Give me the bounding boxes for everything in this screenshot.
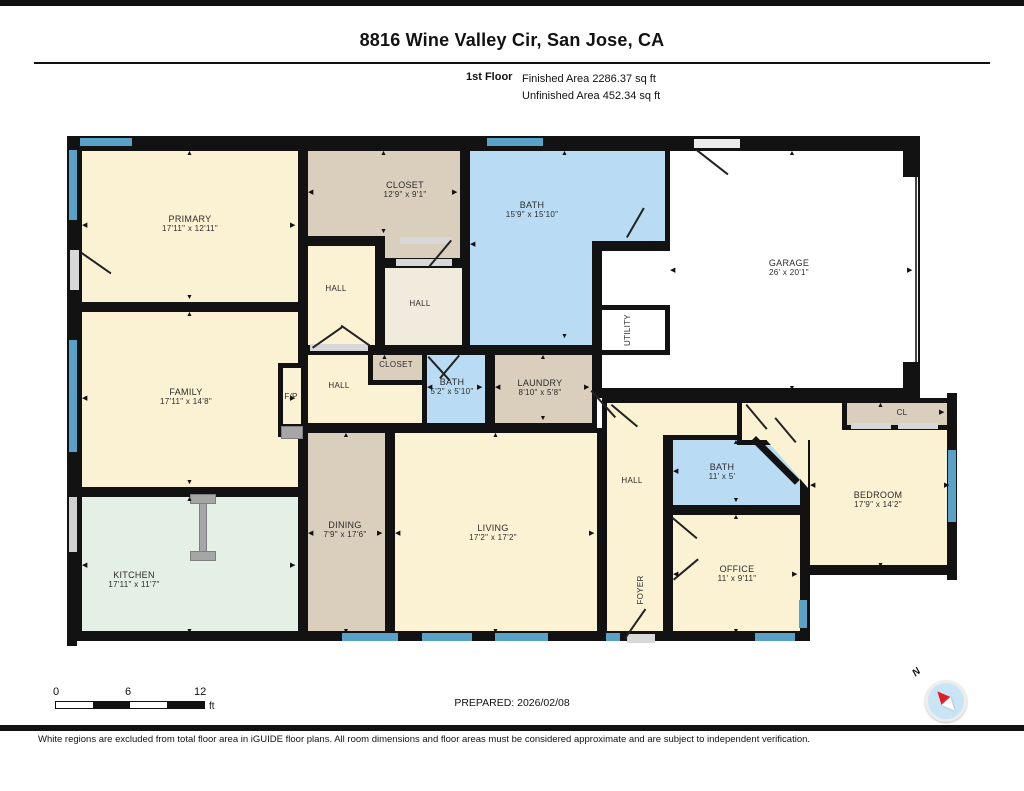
dim-arrow-b-primary: ▼ [186, 294, 193, 302]
room-label-cl: CL [897, 408, 908, 418]
room-dims-bath-top: 15'9" x 15'10" [506, 210, 559, 220]
plan-overlay-15 [190, 551, 216, 561]
room-label-hall-c: HALL [328, 381, 349, 391]
room-name-living: LIVING [469, 523, 517, 533]
room-name-primary: PRIMARY [162, 214, 218, 224]
room-label-living: LIVING17'2" x 17'2" [469, 523, 517, 543]
room-name-hall-center: HALL [621, 476, 642, 486]
dim-arrow-b-living: ▼ [492, 628, 499, 636]
compass-icon [925, 680, 967, 722]
plan-overlay-20 [898, 423, 938, 429]
dim-arrow-t-kitchen: ▲ [186, 496, 193, 504]
dim-arrow-b-dining: ▼ [343, 628, 350, 636]
dim-arrow-t-laundry: ▲ [540, 354, 547, 362]
dim-arrow-t-closet-top: ▲ [380, 150, 387, 158]
floorplan-page: 8816 Wine Valley Cir, San Jose, CA 1st F… [0, 0, 1024, 791]
room-hall-center [607, 403, 663, 636]
room-dims-bedroom: 17'9" x 14'2" [854, 500, 903, 510]
dim-arrow-t-bath-right: ▲ [733, 439, 740, 447]
room-label-bedroom: BEDROOM17'9" x 14'2" [854, 490, 903, 510]
room-hall-center [607, 403, 737, 435]
bottom-border-bar [0, 725, 1024, 731]
dim-arrow-b-kitchen: ▼ [186, 628, 193, 636]
room-bath-top [470, 151, 592, 345]
room-name-utility: UTILITY [623, 314, 633, 346]
dim-arrow-r-cl: ▶ [939, 409, 944, 417]
dim-arrow-l-closet-top: ◀ [308, 189, 313, 197]
room-label-kitchen: KITCHEN17'11" x 11'7" [108, 570, 159, 590]
window-3 [69, 340, 77, 452]
dim-arrow-r-garage: ▶ [907, 267, 912, 275]
room-name-bath-right: BATH [709, 462, 736, 472]
dim-arrow-l-family: ◀ [82, 395, 87, 403]
dim-arrow-t-living: ▲ [492, 432, 499, 440]
room-name-closet-small: CLOSET [379, 360, 413, 370]
room-name-fp: F/P [284, 392, 297, 402]
dim-arrow-r-bath-top: ▶ [652, 241, 657, 249]
window-0 [80, 138, 132, 146]
room-name-office: OFFICE [718, 564, 757, 574]
room-name-hall-c: HALL [328, 381, 349, 391]
window-4 [69, 497, 77, 552]
plan-overlay-26 [70, 250, 79, 290]
dim-arrow-l-living: ◀ [395, 530, 400, 538]
dim-arrow-l-primary: ◀ [82, 222, 87, 230]
dim-arrow-b-office: ▼ [733, 628, 740, 636]
room-label-fp: F/P [284, 392, 297, 402]
dim-arrow-l-bath-right: ◀ [673, 468, 678, 476]
room-label-bath-right: BATH11' x 5' [709, 462, 736, 482]
dim-arrow-l-dining: ◀ [308, 530, 313, 538]
room-name-foyer: FOYER [636, 575, 646, 604]
plan-overlay-22 [694, 139, 740, 148]
room-label-foyer: FOYER [636, 575, 646, 604]
room-label-utility: UTILITY [623, 314, 633, 346]
dim-arrow-l-office: ◀ [673, 571, 678, 579]
room-label-laundry: LAUNDRY8'10" x 5'8" [518, 378, 563, 398]
room-label-dining: DINING7'9" x 17'6" [323, 520, 366, 540]
room-label-primary: PRIMARY17'11" x 12'11" [162, 214, 218, 234]
window-6 [422, 633, 472, 641]
dim-arrow-b-laundry: ▼ [540, 415, 547, 423]
room-label-hall-b: HALL [409, 299, 430, 309]
room-label-hall-a: HALL [325, 284, 346, 294]
room-dims-primary: 17'11" x 12'11" [162, 224, 218, 234]
plan-overlay-10 [903, 362, 920, 398]
room-name-hall-a: HALL [325, 284, 346, 294]
plan-overlay-19 [851, 423, 891, 429]
room-label-closet-small: CLOSET [379, 360, 413, 370]
room-dims-bath-small: 5'2" x 5'10" [430, 387, 473, 397]
room-label-closet-top: CLOSET12'9" x 9'1" [383, 180, 426, 200]
window-8 [606, 633, 620, 641]
floorplan-canvas: PRIMARY17'11" x 12'11"▲▼◀▶FAMILY17'11" x… [0, 0, 1024, 791]
room-name-closet-top: CLOSET [383, 180, 426, 190]
room-name-laundry: LAUNDRY [518, 378, 563, 388]
plan-overlay-9 [903, 141, 920, 177]
dim-arrow-b-bath-right: ▼ [733, 497, 740, 505]
disclaimer-text: White regions are excluded from total fl… [38, 734, 998, 745]
room-dims-closet-top: 12'9" x 9'1" [383, 190, 426, 200]
room-utility [602, 310, 665, 350]
room-name-cl: CL [897, 408, 908, 418]
room-dims-kitchen: 17'11" x 11'7" [108, 580, 159, 590]
plan-overlay-25 [310, 344, 368, 351]
dim-arrow-l-bedroom: ◀ [810, 482, 815, 490]
dim-arrow-t-family: ▲ [186, 311, 193, 319]
dim-arrow-r-primary: ▶ [290, 222, 295, 230]
dim-arrow-r-laundry: ▶ [584, 384, 589, 392]
room-name-bath-small: BATH [430, 377, 473, 387]
room-label-family: FAMILY17'11" x 14'8" [160, 387, 212, 407]
room-name-garage: GARAGE [769, 258, 809, 268]
dim-arrow-t-dining: ▲ [343, 432, 350, 440]
room-dims-dining: 7'9" x 17'6" [323, 530, 366, 540]
dim-arrow-b-bedroom: ▼ [877, 562, 884, 570]
dim-arrow-t-bedroom: ▲ [877, 402, 884, 410]
plan-overlay-3 [597, 388, 920, 398]
window-9 [755, 633, 795, 641]
room-name-bedroom: BEDROOM [854, 490, 903, 500]
dim-arrow-r-closet-top: ▶ [452, 189, 457, 197]
room-dims-living: 17'2" x 17'2" [469, 533, 517, 543]
plan-overlay-16 [199, 503, 207, 552]
room-name-hall-b: HALL [409, 299, 430, 309]
plan-overlay-13 [281, 426, 303, 439]
room-label-bath-small: BATH5'2" x 5'10" [430, 377, 473, 397]
dim-arrow-t-bath-top: ▲ [561, 150, 568, 158]
dim-arrow-r-bath-small: ▶ [477, 384, 482, 392]
room-hall-a [308, 246, 375, 345]
dim-arrow-l-laundry: ◀ [495, 384, 500, 392]
room-dims-office: 11' x 9'11" [718, 574, 757, 584]
window-7 [495, 633, 548, 641]
room-dims-laundry: 8'10" x 5'8" [518, 388, 563, 398]
room-label-bath-top: BATH15'9" x 15'10" [506, 200, 559, 220]
room-label-hall-center: HALL [621, 476, 642, 486]
plan-overlay-23 [400, 237, 452, 244]
plan-overlay-21 [627, 634, 655, 643]
dim-arrow-r-dining: ▶ [377, 530, 382, 538]
dim-arrow-t-garage: ▲ [789, 150, 796, 158]
room-name-kitchen: KITCHEN [108, 570, 159, 580]
dim-arrow-l-bath-small: ◀ [427, 384, 432, 392]
room-label-office: OFFICE11' x 9'11" [718, 564, 757, 584]
dim-arrow-l-bath-top: ◀ [470, 241, 475, 249]
dim-arrow-b-closet-top: ▼ [380, 228, 387, 236]
dim-arrow-b-bath-top: ▼ [561, 333, 568, 341]
dim-arrow-r-bedroom: ▶ [944, 482, 949, 490]
room-name-dining: DINING [323, 520, 366, 530]
dim-arrow-l-kitchen: ◀ [82, 562, 87, 570]
dim-arrow-b-family: ▼ [186, 479, 193, 487]
room-dims-family: 17'11" x 14'8" [160, 397, 212, 407]
window-1 [487, 138, 543, 146]
dim-arrow-t-office: ▲ [733, 514, 740, 522]
dim-arrow-l-garage: ◀ [670, 267, 675, 275]
dim-arrow-t-primary: ▲ [186, 150, 193, 158]
window-2 [69, 150, 77, 220]
plan-overlay-24 [396, 259, 452, 266]
window-5 [342, 633, 398, 641]
room-name-bath-top: BATH [506, 200, 559, 210]
room-dims-bath-right: 11' x 5' [709, 472, 736, 482]
room-label-garage: GARAGE26' x 20'1" [769, 258, 809, 278]
dim-arrow-r-living: ▶ [589, 530, 594, 538]
plan-overlay-8 [915, 174, 917, 362]
dim-arrow-r-office: ▶ [792, 571, 797, 579]
dim-arrow-b-garage: ▼ [789, 385, 796, 393]
room-name-family: FAMILY [160, 387, 212, 397]
window-10 [799, 600, 807, 628]
prepared-date: PREPARED: 2026/02/08 [0, 697, 1024, 709]
room-kitchen [82, 497, 298, 636]
dim-arrow-r-kitchen: ▶ [290, 562, 295, 570]
room-dims-garage: 26' x 20'1" [769, 268, 809, 278]
